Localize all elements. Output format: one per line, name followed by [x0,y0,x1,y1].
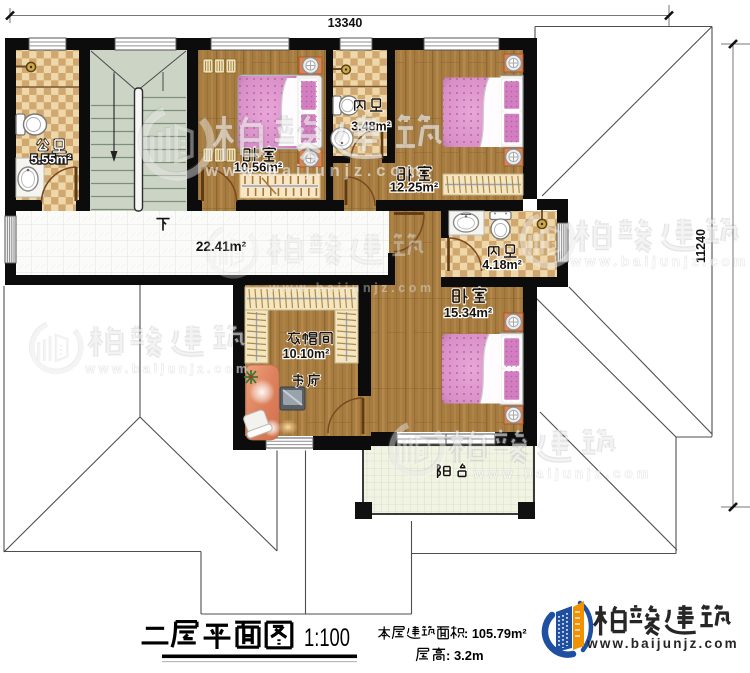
svg-text:www.baijunjz.com: www.baijunjz.com [84,362,250,376]
svg-text:www.baijunjz.com: www.baijunjz.com [570,254,750,269]
svg-text:13340: 13340 [328,16,363,30]
svg-text:: 105.79m²: : 105.79m² [464,626,527,641]
svg-text:5.55m²: 5.55m² [30,152,72,167]
svg-text:12.25m²: 12.25m² [390,180,439,195]
svg-text:1:100: 1:100 [304,624,350,652]
svg-text:4.18m²: 4.18m² [482,258,522,272]
svg-text:www.baijunjz.com: www.baijunjz.com [473,466,653,481]
svg-text:www.baijunjz.com: www.baijunjz.com [586,636,739,651]
svg-text:www.baijunjz.com: www.baijunjz.com [204,162,424,180]
svg-text:: 3.2m: : 3.2m [446,648,484,663]
svg-text:15.34m²: 15.34m² [444,305,493,320]
svg-text:10.10m²: 10.10m² [283,347,330,361]
svg-text:www.baijunjz.com: www.baijunjz.com [268,281,434,295]
